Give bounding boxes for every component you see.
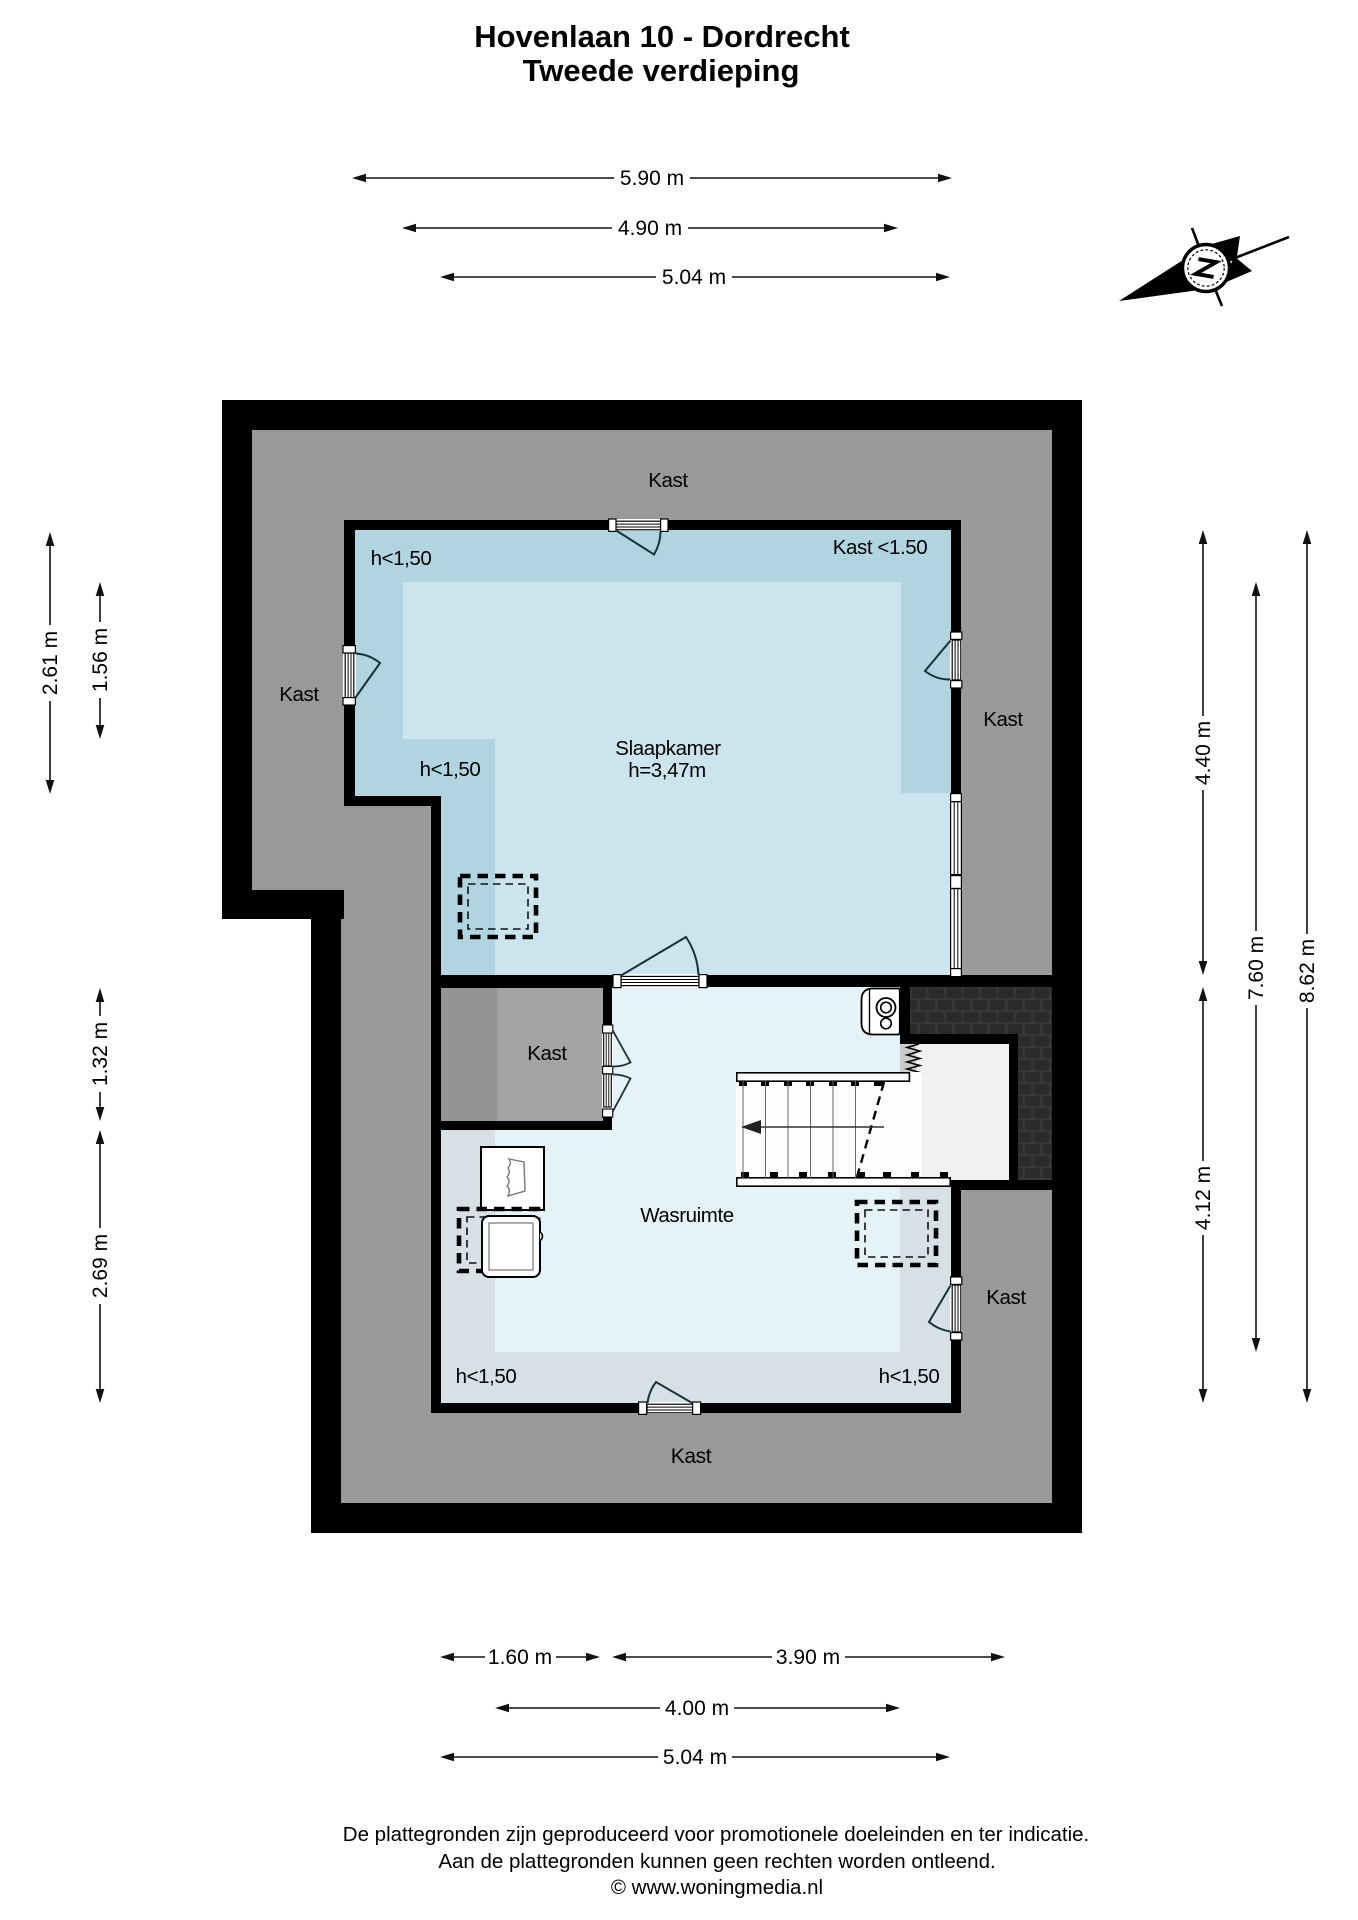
svg-text:De plattegronden zijn geproduc: De plattegronden zijn geproduceerd voor … — [343, 1823, 1089, 1846]
svg-text:h<1,50: h<1,50 — [879, 1365, 940, 1388]
svg-text:Kast <1.50: Kast <1.50 — [833, 536, 928, 559]
svg-text:4.12 m: 4.12 m — [1192, 1166, 1215, 1230]
svg-text:5.04 m: 5.04 m — [662, 266, 726, 289]
svg-text:© www.woningmedia.nl: © www.woningmedia.nl — [611, 1876, 823, 1899]
svg-text:7.60 m: 7.60 m — [1245, 936, 1268, 1000]
svg-text:Tweede verdieping: Tweede verdieping — [523, 53, 800, 88]
svg-text:Wasruimte: Wasruimte — [640, 1204, 734, 1227]
svg-text:3.90 m: 3.90 m — [776, 1646, 840, 1669]
svg-text:2.61 m: 2.61 m — [39, 631, 62, 695]
svg-text:2.69 m: 2.69 m — [89, 1234, 112, 1298]
svg-text:1.60 m: 1.60 m — [488, 1646, 552, 1669]
svg-text:h<1,50: h<1,50 — [371, 547, 432, 570]
svg-text:1.32 m: 1.32 m — [89, 1022, 112, 1086]
svg-text:1.56 m: 1.56 m — [89, 628, 112, 692]
svg-text:Kast: Kast — [279, 683, 319, 706]
svg-text:Aan de plattegronden kunnen ge: Aan de plattegronden kunnen geen rechten… — [438, 1850, 995, 1873]
svg-text:h=3,47m: h=3,47m — [628, 759, 706, 782]
svg-text:h<1,50: h<1,50 — [420, 758, 481, 781]
svg-text:8.62 m: 8.62 m — [1296, 939, 1319, 1003]
svg-text:h<1,50: h<1,50 — [456, 1365, 517, 1388]
svg-text:5.90 m: 5.90 m — [620, 167, 684, 190]
svg-text:Slaapkamer: Slaapkamer — [615, 737, 721, 760]
svg-text:Hovenlaan 10 - Dordrecht: Hovenlaan 10 - Dordrecht — [474, 19, 850, 54]
svg-text:Kast: Kast — [527, 1042, 567, 1065]
svg-text:Kast: Kast — [671, 1445, 712, 1468]
svg-text:Kast: Kast — [986, 1286, 1026, 1309]
svg-text:Kast: Kast — [648, 469, 688, 492]
svg-text:4.40 m: 4.40 m — [1192, 721, 1215, 785]
svg-text:4.00 m: 4.00 m — [665, 1697, 729, 1720]
svg-text:4.90 m: 4.90 m — [618, 217, 682, 240]
svg-text:Kast: Kast — [983, 708, 1023, 731]
svg-text:5.04 m: 5.04 m — [663, 1746, 727, 1769]
